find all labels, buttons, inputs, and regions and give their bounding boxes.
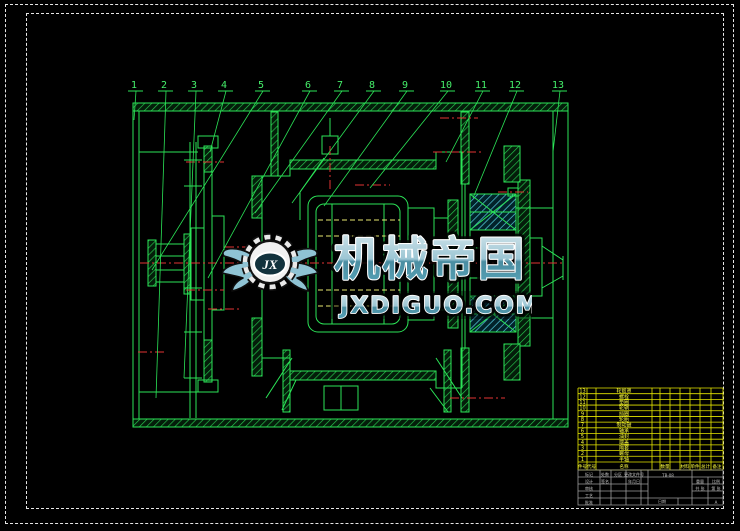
svg-text:工艺: 工艺 (585, 493, 593, 498)
svg-text:批准: 批准 (585, 499, 593, 505)
svg-text:签名: 签名 (601, 478, 609, 484)
title-block-text: 标记处数分区更改文件号设计签名年月日审核工艺批准TB-08重量比例共 张第 张日… (585, 471, 721, 505)
svg-text:TB-08: TB-08 (661, 473, 674, 478)
svg-text:年月日: 年月日 (628, 478, 640, 484)
svg-text:审核: 审核 (585, 485, 593, 491)
svg-text:单件: 单件 (691, 463, 700, 470)
domain-text: JXDIGUO.COM (338, 293, 532, 319)
svg-text:第 张: 第 张 (711, 485, 720, 491)
svg-text:设计: 设计 (585, 478, 593, 484)
watermark: JX 机械帝国 机械帝国 JXDIGUO.COM JXDIGUO.COM (222, 215, 532, 325)
svg-text:材料: 材料 (681, 463, 690, 470)
svg-text:半轴: 半轴 (619, 456, 629, 463)
svg-text:重量: 重量 (696, 478, 704, 484)
svg-text:处数: 处数 (601, 471, 609, 477)
svg-text:比例: 比例 (712, 478, 720, 484)
svg-text:代号: 代号 (587, 463, 596, 470)
logo-monogram: JX (261, 257, 278, 272)
svg-text:1: 1 (581, 457, 584, 463)
svg-text:备注: 备注 (713, 463, 722, 470)
svg-text:日期: 日期 (658, 498, 666, 504)
svg-text:共 张: 共 张 (695, 485, 704, 491)
bom-table-grid (578, 388, 723, 470)
brand-text: 机械帝国 (334, 232, 526, 286)
svg-text:名称: 名称 (620, 463, 629, 470)
svg-text:数量: 数量 (661, 463, 670, 470)
cad-sheet: 12345678910111213 13轮毂罩12螺栓11垫圈10轮辋9挡圈8轮… (0, 0, 740, 531)
svg-text:A: A (715, 500, 718, 505)
svg-text:更改文件号: 更改文件号 (624, 471, 644, 477)
svg-text:总计: 总计 (701, 463, 710, 470)
svg-text:标记: 标记 (585, 471, 593, 477)
svg-text:分区: 分区 (614, 471, 622, 477)
